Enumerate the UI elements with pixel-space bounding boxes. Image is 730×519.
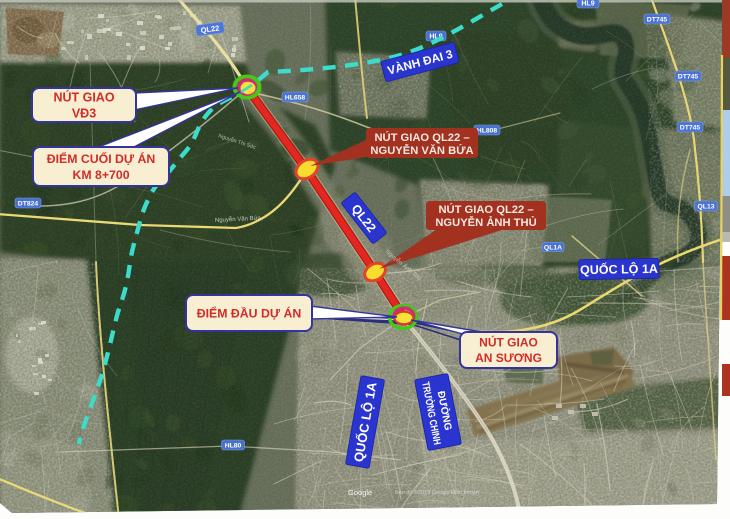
svg-text:NÚT GIAO QL22 –: NÚT GIAO QL22 –	[438, 203, 533, 216]
svg-text:HL808: HL808	[477, 127, 498, 134]
svg-text:VĐ3: VĐ3	[72, 107, 96, 121]
svg-text:NGUYỄN ẢNH THỦ: NGUYỄN ẢNH THỦ	[435, 216, 536, 229]
svg-text:KM 8+700: KM 8+700	[72, 168, 129, 182]
svg-text:HL80: HL80	[225, 442, 242, 449]
svg-text:DT745: DT745	[678, 73, 699, 80]
svg-text:NÚT GIAO: NÚT GIAO	[479, 335, 538, 350]
svg-text:HL658: HL658	[285, 94, 306, 101]
svg-text:QUỐC LỘ 1A: QUỐC LỘ 1A	[580, 261, 658, 277]
svg-text:NGUYỄN VĂN BỨA: NGUYỄN VĂN BỨA	[370, 144, 473, 157]
svg-text:QL13: QL13	[698, 203, 715, 210]
svg-text:Bản đồ ©2016 Google Điều khoả: Bản đồ ©2016 Google Điều khoản	[395, 489, 479, 496]
svg-text:ĐIỂM ĐẦU DỰ ÁN: ĐIỂM ĐẦU DỰ ÁN	[197, 305, 302, 320]
svg-text:Google: Google	[348, 488, 372, 497]
svg-text:AN SƯƠNG: AN SƯƠNG	[475, 351, 542, 365]
svg-text:DT745: DT745	[647, 16, 668, 23]
svg-text:HL9: HL9	[581, 1, 594, 8]
svg-text:ĐIỂM CUỐI DỰ ÁN: ĐIỂM CUỐI DỰ ÁN	[47, 151, 156, 166]
svg-text:NÚT GIAO: NÚT GIAO	[53, 90, 114, 105]
svg-text:NÚT GIAO QL22 –: NÚT GIAO QL22 –	[374, 131, 469, 144]
svg-text:QL1A: QL1A	[544, 244, 562, 251]
svg-text:DT745: DT745	[680, 124, 701, 131]
svg-text:DT824: DT824	[18, 200, 39, 207]
